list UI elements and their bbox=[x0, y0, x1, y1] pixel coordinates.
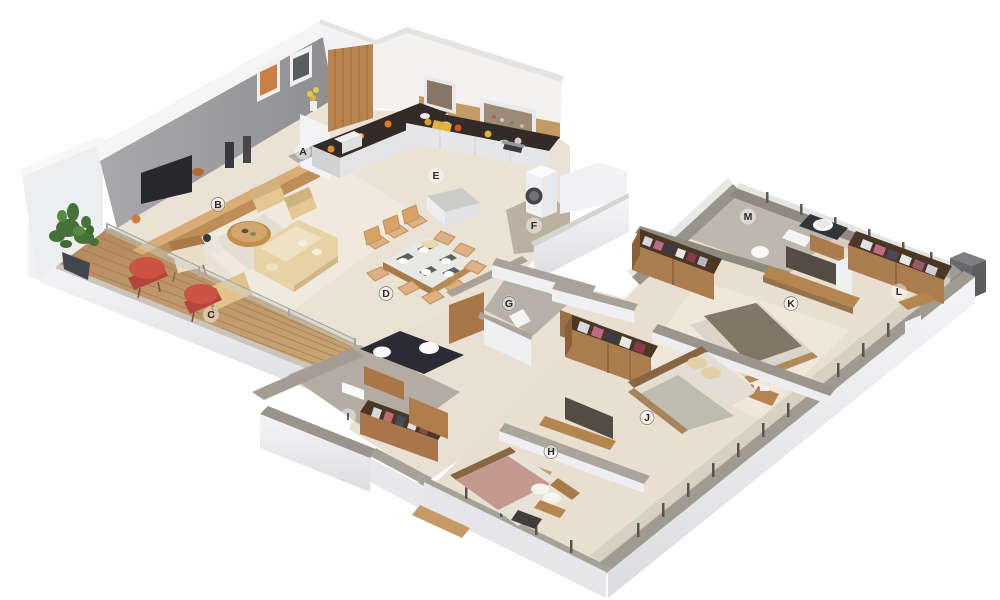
svg-text:J: J bbox=[644, 412, 650, 424]
svg-text:M: M bbox=[744, 211, 753, 223]
svg-text:E: E bbox=[432, 170, 439, 182]
svg-text:L: L bbox=[896, 286, 903, 298]
svg-text:A: A bbox=[299, 146, 307, 158]
svg-text:H: H bbox=[547, 446, 555, 458]
svg-text:K: K bbox=[787, 298, 795, 310]
svg-text:B: B bbox=[214, 199, 222, 211]
svg-text:D: D bbox=[382, 288, 390, 300]
svg-text:G: G bbox=[505, 298, 513, 310]
svg-text:I: I bbox=[347, 411, 350, 423]
svg-text:C: C bbox=[207, 309, 215, 321]
svg-text:F: F bbox=[531, 220, 538, 232]
